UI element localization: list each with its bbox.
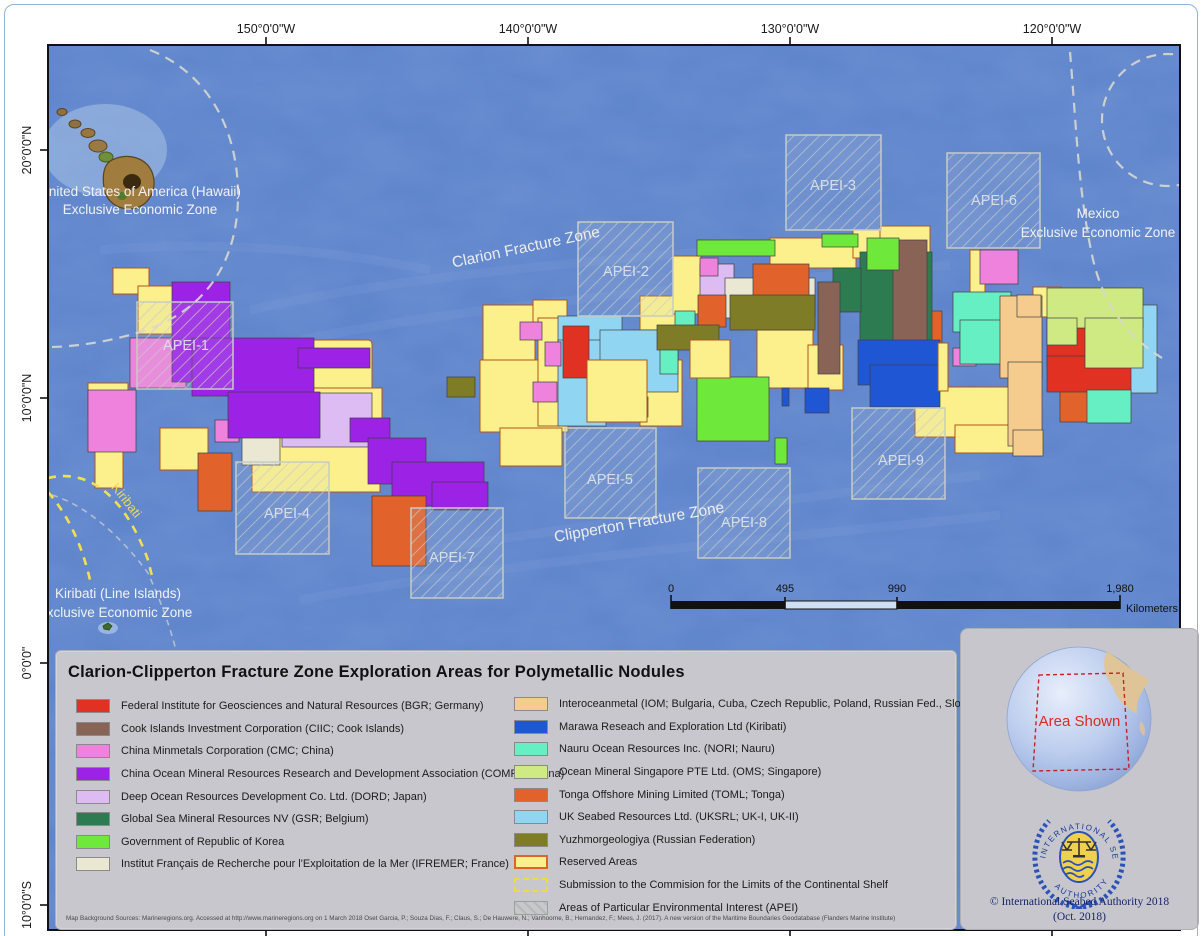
mexico-label-line2: Exclusive Economic Zone — [1021, 225, 1176, 240]
small-island-group — [98, 622, 118, 634]
lat-label-10s: 10°0'0"S — [20, 881, 34, 929]
claim-block — [818, 282, 840, 374]
legend-swatch-dord — [76, 790, 110, 804]
legend-item: Cook Islands Investment Corporation (CII… — [76, 718, 508, 741]
legend-swatch-yuzhmorgeologiya — [514, 833, 548, 847]
scale-tick-0: 0 — [668, 583, 674, 595]
claim-block — [822, 234, 858, 247]
claim-block — [500, 428, 562, 466]
claim-block — [88, 390, 136, 452]
legend-swatch-bgr — [76, 699, 110, 713]
claim-block — [690, 340, 730, 378]
claim-block — [753, 264, 809, 296]
legend-swatch-comra — [76, 767, 110, 781]
claim-block — [700, 258, 718, 276]
claim-block — [938, 343, 948, 391]
claim-block — [675, 311, 695, 326]
hawaii-island — [57, 109, 67, 116]
claim-block — [1047, 318, 1077, 345]
mexico-label-line1: Mexico — [1077, 206, 1120, 221]
legend-item: Government of Republic of Korea — [76, 831, 508, 854]
lon-label-150w: 150°0'0"W — [237, 22, 296, 36]
legend-item: Interoceanmetal (IOM; Bulgaria, Cuba, Cz… — [514, 693, 952, 716]
claim-block — [782, 388, 789, 406]
apei-4-label: APEI-4 — [264, 506, 310, 522]
apei-1-label: APEI-1 — [163, 338, 209, 354]
claim-block — [1087, 390, 1131, 423]
claim-block — [775, 438, 787, 464]
claim-block — [228, 392, 320, 438]
apei-3-label: APEI-3 — [810, 178, 856, 194]
claim-block — [870, 365, 940, 407]
claim-block — [697, 240, 775, 256]
claim-block — [298, 348, 370, 368]
legend-item: Yuzhmorgeologiya (Russian Federation) — [514, 829, 952, 852]
legend-swatch-marawa — [514, 720, 548, 734]
apei-8-label: APEI-8 — [721, 515, 767, 531]
claim-block — [980, 250, 1018, 284]
claim-block — [805, 388, 829, 413]
isa-logo-graphic: INTERNATIONAL SEABED AUTHORITY — [1024, 797, 1134, 909]
legend-swatch-ifremer — [76, 857, 110, 871]
legend-item: China Ocean Mineral Resources Research a… — [76, 763, 508, 786]
legend-item: UK Seabed Resources Ltd. (UKSRL; UK-I, U… — [514, 806, 952, 829]
legend-swatch-korea — [76, 835, 110, 849]
claim-block — [447, 377, 475, 397]
legend-column-right: Interoceanmetal (IOM; Bulgaria, Cuba, Cz… — [514, 693, 952, 919]
lat-label-20n: 20°0'0"N — [20, 126, 34, 175]
scale-unit-label: Kilometers — [1126, 603, 1178, 615]
copyright-line1: © International Seabed Authority 2018 — [961, 895, 1198, 910]
legend-panel: Clarion-Clipperton Fracture Zone Explora… — [55, 650, 957, 930]
legend-swatch-gsr — [76, 812, 110, 826]
legend-swatch-uksrl — [514, 810, 548, 824]
claim-block — [697, 377, 769, 441]
legend-column-left: Federal Institute for Geosciences and Na… — [76, 695, 508, 876]
area-shown-label: Area Shown — [961, 713, 1198, 730]
legend-item: Marawa Reseach and Exploration Ltd (Kiri… — [514, 716, 952, 739]
lat-label-0: 0°0'0" — [20, 647, 34, 680]
scale-bar-segment — [897, 601, 1120, 609]
legend-swatch-reserved-areas — [514, 855, 548, 869]
us-eez-label-line2: Exclusive Economic Zone — [63, 202, 218, 217]
lat-label-10n: 10°0'0"N — [20, 374, 34, 423]
apei-7-label: APEI-7 — [429, 550, 475, 566]
legend-item: Federal Institute for Geosciences and Na… — [76, 695, 508, 718]
claim-block — [587, 360, 647, 422]
info-panel: Area Shown — [960, 628, 1199, 930]
legend-swatch-oms — [514, 765, 548, 779]
scale-bar-segment — [671, 601, 785, 609]
legend-item: Reserved Areas — [514, 851, 952, 874]
legend-swatch-ciic — [76, 722, 110, 736]
scale-tick-1980: 1,980 — [1106, 583, 1134, 595]
lon-label-130w: 130°0'0"W — [761, 22, 820, 36]
hawaii-island — [89, 140, 107, 152]
claim-block — [673, 256, 701, 314]
legend-item: Submission to the Commision for the Limi… — [514, 874, 952, 897]
apei-2-label: APEI-2 — [603, 264, 649, 280]
apei-9-label: APEI-9 — [878, 453, 924, 469]
claim-block — [533, 382, 557, 402]
isa-logo: INTERNATIONAL SEABED AUTHORITY — [1024, 797, 1134, 909]
legend-swatch-toml — [514, 788, 548, 802]
legend-item: Ocean Mineral Singapore PTE Ltd. (OMS; S… — [514, 761, 952, 784]
apei-6-label: APEI-6 — [971, 193, 1017, 209]
legend-item: Institut Français de Recherche pour l'Ex… — [76, 853, 508, 876]
claim-block — [563, 326, 589, 378]
claim-block — [1060, 388, 1088, 422]
scale-tick-990: 990 — [888, 583, 906, 595]
legend-swatch-nori — [514, 742, 548, 756]
legend-item: Tonga Offshore Mining Limited (TOML; Ton… — [514, 783, 952, 806]
map-document-page: APEI-1 APEI-2 APEI-3 APEI-4 APEI-5 APEI-… — [0, 0, 1202, 936]
legend-item: Nauru Ocean Resources Inc. (NORI; Nauru) — [514, 738, 952, 761]
scale-tick-495: 495 — [776, 583, 794, 595]
kiribati-eez-label-line1: Kiribati (Line Islands) — [55, 586, 181, 601]
apei-5-label: APEI-5 — [587, 472, 633, 488]
claim-block — [520, 322, 542, 340]
claim-block — [698, 295, 726, 327]
scale-bar-segment — [785, 601, 897, 609]
lon-label-120w: 120°0'0"W — [1023, 22, 1082, 36]
claim-block — [545, 342, 561, 366]
claim-block — [1013, 430, 1043, 456]
claim-block — [1017, 295, 1041, 317]
legend-swatch-iom — [514, 697, 548, 711]
claim-block — [432, 482, 488, 510]
claim-block — [1085, 318, 1143, 368]
legend-swatch-clcs-submission — [514, 878, 548, 892]
legend-title: Clarion-Clipperton Fracture Zone Explora… — [68, 663, 685, 682]
copyright-line2: (Oct. 2018) — [961, 910, 1198, 925]
legend-item: Global Sea Mineral Resources NV (GSR; Be… — [76, 808, 508, 831]
lon-label-140w: 140°0'0"W — [499, 22, 558, 36]
hawaii-island — [69, 120, 81, 128]
kiribati-eez-label-line2: Exclusive Economic Zone — [38, 605, 193, 620]
map-sources-note: Map Background Sources: Marineregions.or… — [66, 915, 948, 922]
us-eez-label-line1: United States of America (Hawaii) — [39, 184, 241, 199]
legend-item: Deep Ocean Resources Development Co. Ltd… — [76, 785, 508, 808]
copyright-text: © International Seabed Authority 2018 (O… — [961, 895, 1198, 925]
legend-item: China Minmetals Corporation (CMC; China) — [76, 740, 508, 763]
legend-swatch-apei — [514, 901, 548, 915]
hawaii-island — [81, 129, 95, 138]
claim-block — [730, 295, 815, 330]
claim-block — [867, 238, 899, 270]
claim-block — [198, 453, 232, 511]
legend-swatch-cmc — [76, 744, 110, 758]
